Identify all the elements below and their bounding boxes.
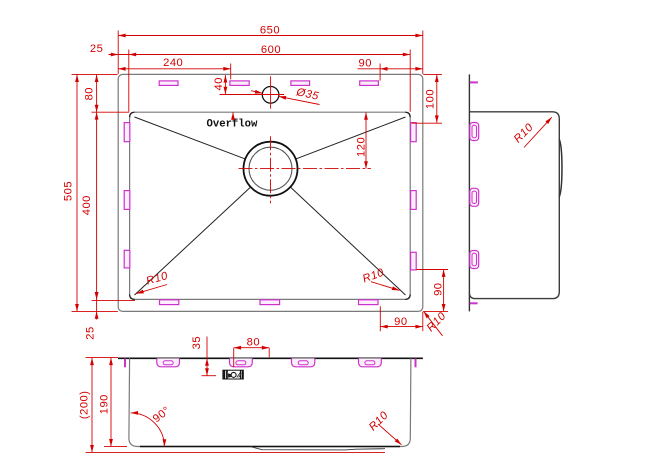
svg-text:600: 600	[261, 44, 281, 56]
svg-text:R10: R10	[367, 409, 391, 433]
svg-text:650: 650	[260, 25, 280, 37]
svg-text:25: 25	[84, 326, 96, 339]
svg-text:R10: R10	[512, 121, 536, 145]
svg-text:505: 505	[63, 181, 75, 201]
svg-text:190: 190	[98, 394, 110, 414]
svg-text:R10: R10	[425, 310, 449, 334]
svg-text:100: 100	[424, 89, 436, 109]
svg-text:80: 80	[84, 87, 96, 100]
svg-text:120: 120	[355, 137, 367, 157]
svg-text:35: 35	[191, 336, 203, 349]
svg-text:90: 90	[432, 282, 444, 295]
svg-text:90: 90	[394, 316, 407, 328]
svg-text:400: 400	[81, 195, 93, 215]
svg-text:90: 90	[358, 57, 371, 69]
svg-text:25: 25	[90, 43, 103, 55]
svg-text:Overflow: Overflow	[207, 119, 259, 131]
svg-text:40: 40	[213, 77, 225, 90]
svg-text:240: 240	[163, 57, 183, 69]
svg-text:(200): (200)	[79, 390, 91, 419]
svg-text:80: 80	[247, 337, 260, 349]
